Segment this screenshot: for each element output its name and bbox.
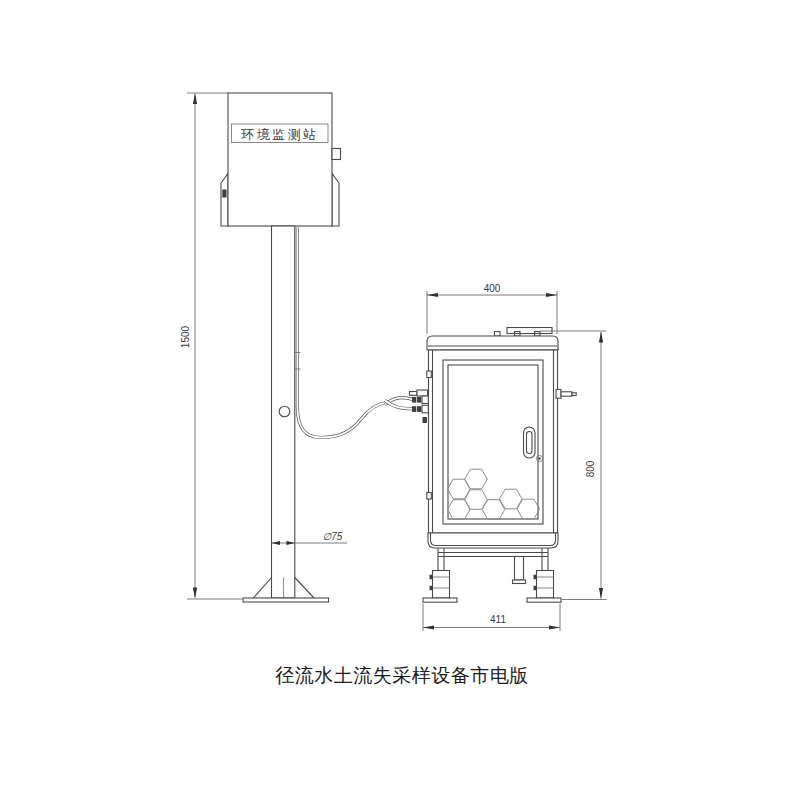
door-lock-pin (538, 457, 540, 459)
foot-bolt-l1 (430, 575, 433, 579)
foot-bolt-r2 (534, 586, 537, 590)
monitoring-station: 环境监测站 (221, 93, 341, 602)
foot-bolt-r1 (534, 575, 537, 579)
sampling-cabinet (410, 328, 577, 603)
foot-block-right (537, 571, 554, 599)
pole-base-plate (243, 598, 329, 602)
vent-plug-body (417, 390, 428, 396)
dim-cabinet-width-text: 400 (484, 283, 501, 294)
foot-plate-right (527, 598, 561, 602)
roof-plate (507, 328, 552, 334)
right-fitting (556, 390, 576, 399)
drawing-caption: 径流水土流失采样设备市电版 (275, 665, 529, 686)
technical-drawing: 环境监测站 (0, 0, 800, 800)
dim-cabinet-height-text: 800 (585, 460, 596, 477)
gland-1-bracket (422, 396, 428, 404)
station-side-tab (332, 149, 341, 160)
bracket-left (221, 174, 228, 227)
drawing-canvas: 环境监测站 (0, 0, 800, 800)
dim-base-width-text: 411 (490, 614, 506, 625)
fitting-base (556, 390, 561, 399)
roof-knuckle-1 (495, 332, 501, 337)
dim-cabinet-width: 400 (427, 283, 557, 335)
gland-1-nut-a (412, 397, 416, 403)
dim-base-width: 411 (423, 604, 560, 632)
foot-plate-left (423, 598, 457, 602)
fitting-cap (572, 393, 576, 396)
dim-pole-diameter-text: ∅75 (323, 531, 343, 542)
signal-cable (294, 228, 413, 438)
drain-pipe (515, 557, 524, 581)
dim-pole-height-text: 1500 (180, 325, 191, 348)
gland-1-nut-b (417, 397, 421, 403)
bracket-latch (222, 190, 226, 198)
fitting-pipe (561, 392, 572, 396)
drain-pipe-foot (513, 580, 526, 584)
gland-2-bracket (422, 405, 428, 413)
foot-bolt-l2 (430, 586, 433, 590)
gland-2-nut-b (417, 406, 421, 412)
cable-main-outer (297, 228, 387, 438)
station-box (228, 93, 332, 226)
hinge-top (427, 371, 432, 378)
leg-frame (423, 548, 561, 602)
cabinet-lid (427, 336, 558, 350)
gland-stub (423, 417, 428, 423)
bracket-right (332, 174, 339, 227)
cable-glands (410, 390, 429, 423)
base-gusset-right (295, 578, 314, 599)
gland-2-nut-a (412, 406, 416, 412)
vent-plug-cap (410, 392, 418, 396)
base-gusset-left (254, 578, 272, 599)
station-label: 环境监测站 (240, 127, 319, 142)
foot-block-left (433, 571, 450, 599)
hinge-bottom (427, 493, 432, 500)
